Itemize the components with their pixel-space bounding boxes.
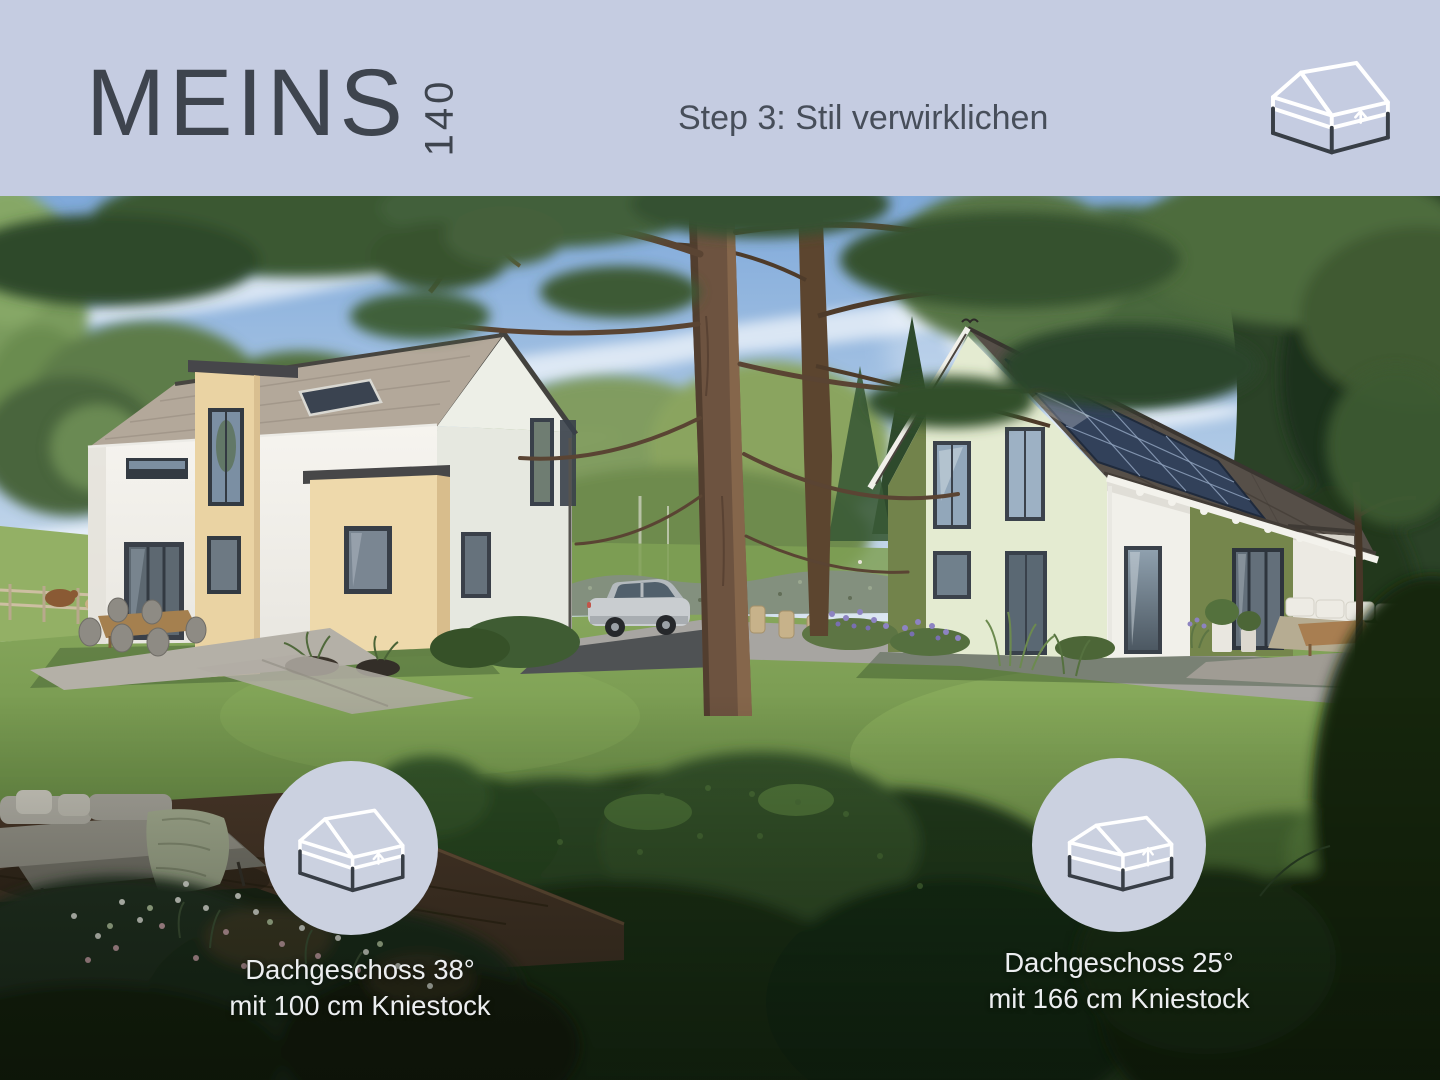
badge-roof-25[interactable]: [1032, 758, 1206, 932]
step-title: Step 3: Stil verwirklichen: [678, 99, 1048, 138]
right-house-label-line1: Dachgeschoss 25°: [899, 945, 1339, 981]
header-bar: MEINS 140 Step 3: Stil verwirklichen: [0, 0, 1440, 196]
brand-logo: MEINS 140: [86, 56, 467, 176]
configurator-page: MEINS 140 Step 3: Stil verwirklichen: [0, 0, 1440, 1080]
attic-house-icon: [1264, 48, 1396, 167]
left-house-label-line1: Dachgeschoss 38°: [140, 952, 580, 988]
scene-photo: Dachgeschoss 38° mit 100 cm Kniestock Da…: [0, 196, 1440, 1080]
right-house-label: Dachgeschoss 25° mit 166 cm Kniestock: [899, 945, 1339, 1018]
brand-name: MEINS: [86, 56, 407, 151]
right-house-label-line2: mit 166 cm Kniestock: [899, 981, 1339, 1017]
attic-house-25-icon: [1060, 794, 1178, 896]
brand-number: 140: [417, 78, 462, 157]
badge-roof-38[interactable]: [264, 761, 438, 935]
left-house-label: Dachgeschoss 38° mit 100 cm Kniestock: [140, 952, 580, 1025]
left-house-label-line2: mit 100 cm Kniestock: [140, 988, 580, 1024]
attic-house-38-icon: [292, 797, 410, 899]
brand-number-box: 140: [413, 58, 467, 176]
